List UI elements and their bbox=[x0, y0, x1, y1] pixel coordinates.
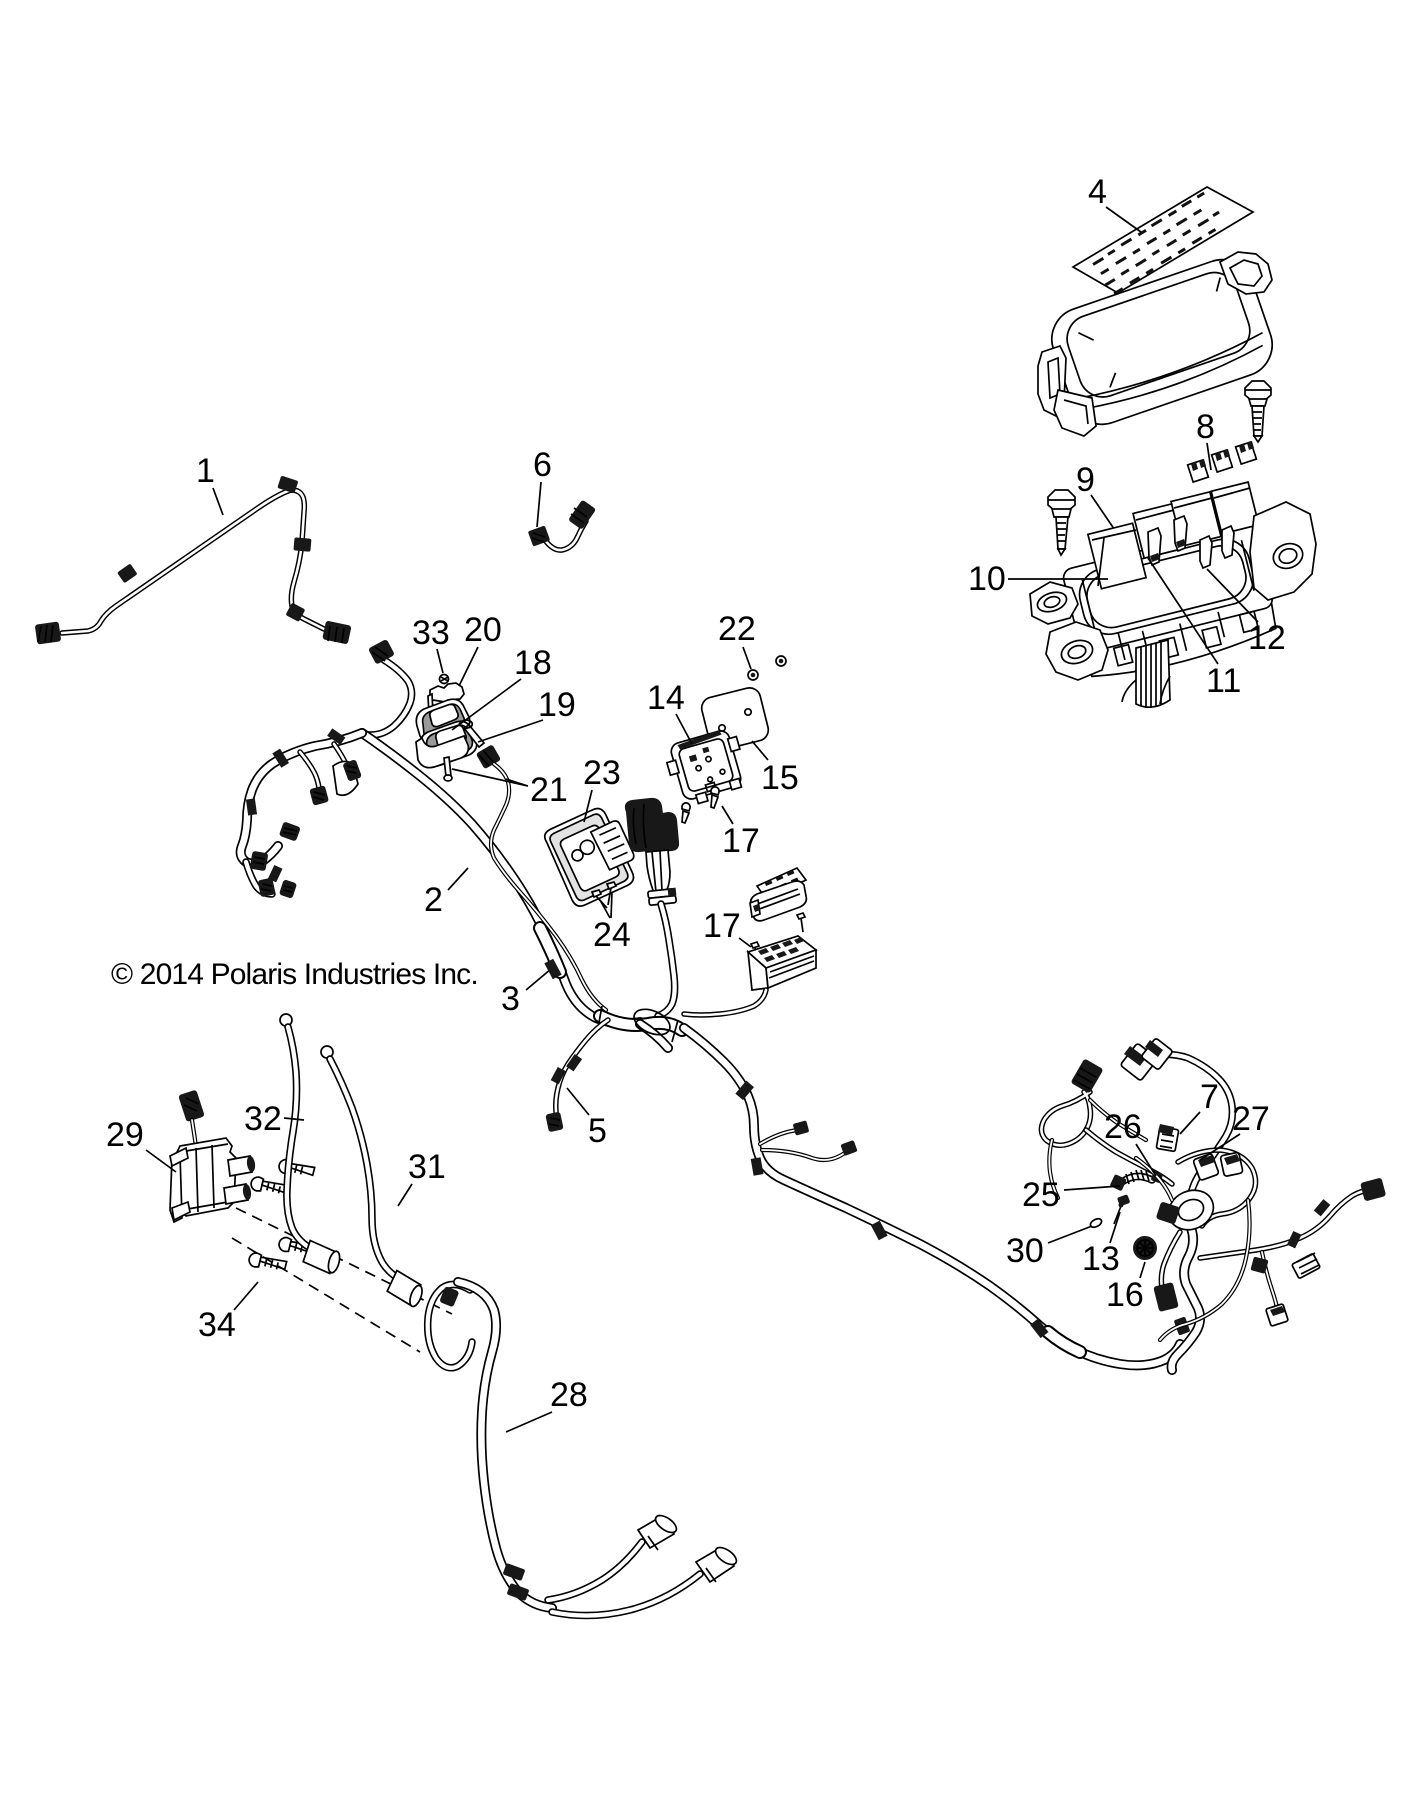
svg-text:21: 21 bbox=[530, 771, 568, 809]
svg-text:22: 22 bbox=[718, 610, 756, 648]
svg-text:9: 9 bbox=[1076, 461, 1095, 499]
svg-text:34: 34 bbox=[198, 1306, 236, 1344]
svg-text:6: 6 bbox=[533, 446, 552, 484]
svg-text:27: 27 bbox=[1232, 1100, 1270, 1138]
svg-text:7: 7 bbox=[1200, 1078, 1219, 1116]
svg-text:© 2014 Polaris Industries Inc.: © 2014 Polaris Industries Inc. bbox=[111, 958, 478, 991]
svg-text:29: 29 bbox=[106, 1116, 144, 1154]
svg-text:16: 16 bbox=[1106, 1276, 1144, 1314]
svg-text:25: 25 bbox=[1022, 1176, 1060, 1214]
svg-text:2: 2 bbox=[424, 881, 443, 919]
svg-text:1: 1 bbox=[196, 452, 215, 490]
svg-text:3: 3 bbox=[501, 980, 520, 1018]
svg-text:33: 33 bbox=[412, 614, 450, 652]
svg-text:13: 13 bbox=[1082, 1240, 1120, 1278]
svg-text:32: 32 bbox=[244, 1100, 282, 1138]
svg-text:4: 4 bbox=[1088, 173, 1107, 211]
svg-text:14: 14 bbox=[647, 679, 685, 717]
svg-text:19: 19 bbox=[538, 686, 576, 724]
svg-text:8: 8 bbox=[1196, 408, 1215, 446]
svg-text:10: 10 bbox=[968, 560, 1006, 598]
svg-text:31: 31 bbox=[408, 1148, 446, 1186]
svg-text:5: 5 bbox=[588, 1112, 607, 1150]
svg-text:26: 26 bbox=[1104, 1108, 1142, 1146]
svg-text:17: 17 bbox=[703, 907, 741, 945]
svg-text:17: 17 bbox=[722, 822, 760, 860]
svg-text:30: 30 bbox=[1006, 1232, 1044, 1270]
svg-text:28: 28 bbox=[550, 1376, 588, 1414]
svg-text:24: 24 bbox=[593, 916, 631, 954]
svg-text:12: 12 bbox=[1248, 619, 1286, 657]
svg-text:20: 20 bbox=[464, 611, 502, 649]
svg-text:11: 11 bbox=[1206, 662, 1241, 700]
svg-text:18: 18 bbox=[514, 644, 552, 682]
svg-text:23: 23 bbox=[583, 754, 621, 792]
svg-text:15: 15 bbox=[761, 759, 799, 797]
